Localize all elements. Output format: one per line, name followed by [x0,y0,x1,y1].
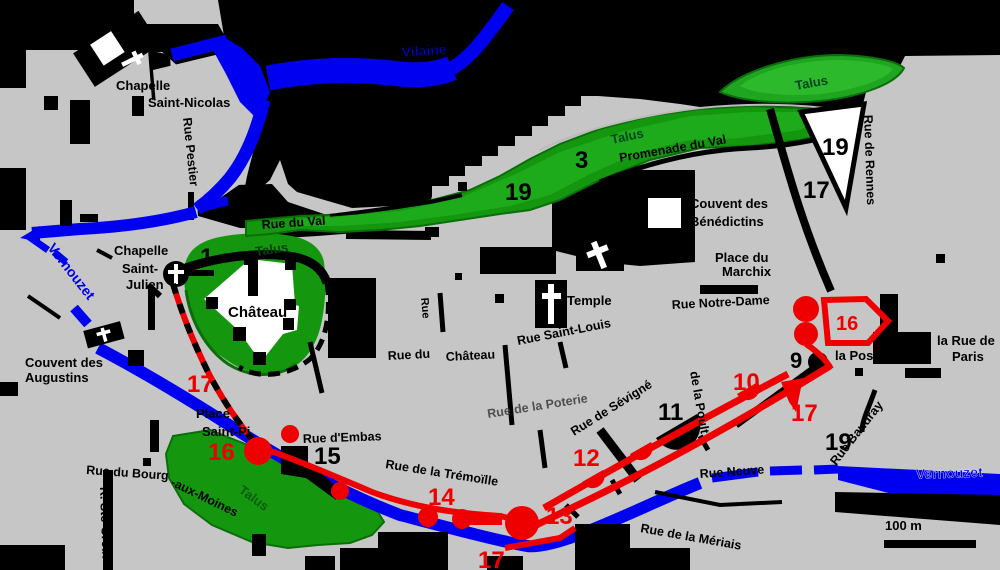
svg-text:Augustins: Augustins [25,370,89,385]
svg-text:13: 13 [546,503,573,530]
svg-text:Couvent des: Couvent des [25,355,103,370]
svg-text:Bénédictins: Bénédictins [690,214,764,229]
svg-text:Saint-Nicolas: Saint-Nicolas [148,95,230,110]
svg-text:17: 17 [791,400,818,427]
svg-text:1: 1 [200,244,213,271]
svg-text:3: 3 [575,147,588,174]
svg-text:16: 16 [208,439,235,466]
svg-text:10: 10 [733,369,760,396]
svg-text:14: 14 [428,484,455,511]
svg-text:Château: Château [445,347,495,364]
svg-text:Couvent des: Couvent des [690,196,768,211]
svg-text:Saint-Pi: Saint-Pi [202,424,250,439]
svg-text:Saint-: Saint- [122,261,158,276]
svg-text:Vernouzet: Vernouzet [916,464,984,482]
svg-text:Place: Place [196,406,230,421]
svg-text:17: 17 [478,547,505,570]
svg-text:11: 11 [658,399,683,426]
svg-text:100 m: 100 m [885,518,922,533]
svg-text:Vilaine: Vilaine [401,41,447,60]
svg-text:Place du: Place du [715,250,769,265]
svg-text:16: 16 [836,313,858,335]
svg-text:Château: Château [228,304,287,321]
svg-text:Marchix: Marchix [722,264,772,279]
svg-text:Rue du: Rue du [387,347,430,363]
svg-text:17: 17 [187,371,214,398]
svg-text:19: 19 [505,179,532,206]
svg-text:17: 17 [803,177,830,204]
svg-text:Paris: Paris [952,349,984,364]
svg-text:19: 19 [825,429,852,456]
svg-text:Rue: Rue [418,297,432,319]
svg-text:Chapelle: Chapelle [116,78,170,93]
svg-text:Temple: Temple [567,293,612,308]
svg-text:la Rue de: la Rue de [937,333,995,348]
svg-text:19: 19 [822,134,849,161]
svg-text:Chapelle: Chapelle [114,243,168,258]
svg-text:R. Ste-Croix: R. Ste-Croix [97,487,113,559]
svg-text:Julien: Julien [126,277,164,292]
svg-text:la Poste: la Poste [835,348,885,363]
svg-text:12: 12 [573,445,600,472]
svg-text:9: 9 [790,348,802,373]
svg-text:15: 15 [314,443,341,470]
